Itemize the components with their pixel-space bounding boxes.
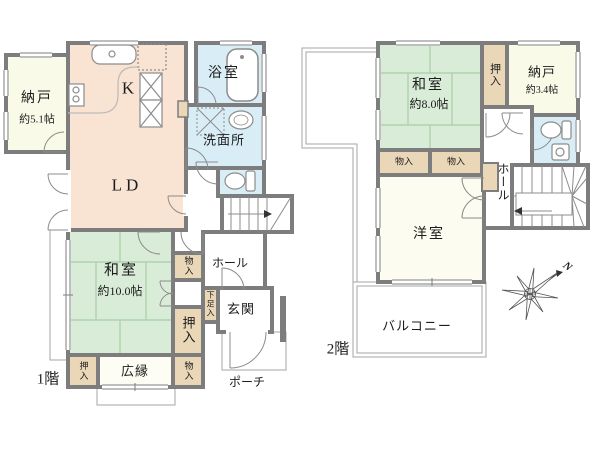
room-label-nando-1f: 納戸 <box>21 92 53 106</box>
room-label-hall-2f: ホール <box>497 163 509 202</box>
floorplan-drawing <box>0 0 600 450</box>
room-label-bath: 浴室 <box>208 67 240 81</box>
room-label-balcony: バルコニー <box>382 320 452 333</box>
closet-label-monoiri-a-2f: 物入 <box>395 158 413 167</box>
closet-label-oshiire-2f: 押入 <box>489 63 500 87</box>
room-size-washitsu-1f: 約10.0帖 <box>97 285 142 297</box>
floorplan: 納戸 約5.1帖 K LD 浴室 洗面所 和室 約10.0帖 物入 押入 押入 … <box>0 0 600 450</box>
room-label-porch: ポーチ <box>229 376 265 388</box>
room-label-nando-2f: 納戸 <box>528 66 556 79</box>
toilet-1f-icon <box>225 171 255 191</box>
room-label-washroom: 洗面所 <box>203 134 245 147</box>
closet-label-oshiire-left-1f: 押入 <box>79 361 88 381</box>
closet-label-oshiire-right-1f: 押入 <box>182 316 195 344</box>
room-label-hiroen: 広縁 <box>121 365 149 378</box>
room-size-washitsu-2f: 約8.0帖 <box>409 98 448 110</box>
room-label-ld: LD <box>112 177 143 194</box>
closet-label-monoiri-b-2f: 物入 <box>447 158 465 167</box>
closet-label-monoiri-lower-1f: 物入 <box>184 361 193 381</box>
room-label-hall-1f: ホール <box>212 257 248 269</box>
room-label-washitsu-2f: 和室 <box>412 79 444 93</box>
room-size-nando-1f: 約5.1帖 <box>19 115 55 126</box>
kitchen-sink-icon <box>92 45 136 64</box>
washroom-sink-icon <box>229 111 253 129</box>
floor-label-1f: 1階 <box>37 373 60 388</box>
closet-label-monoiri-upper-1f: 物入 <box>184 256 193 276</box>
room-label-genkan: 玄関 <box>227 303 255 316</box>
closet-label-shoe: 下足入 <box>206 291 214 318</box>
room-label-kitchen: K <box>122 80 134 97</box>
room-label-washitsu-1f: 和室 <box>104 264 138 279</box>
stove-icon <box>69 84 84 106</box>
floor-label-2f: 2階 <box>327 343 350 358</box>
room-label-yoshitsu: 洋室 <box>413 228 445 242</box>
room-size-nando-2f: 約3.4帖 <box>526 86 559 96</box>
compass-icon <box>502 268 563 320</box>
